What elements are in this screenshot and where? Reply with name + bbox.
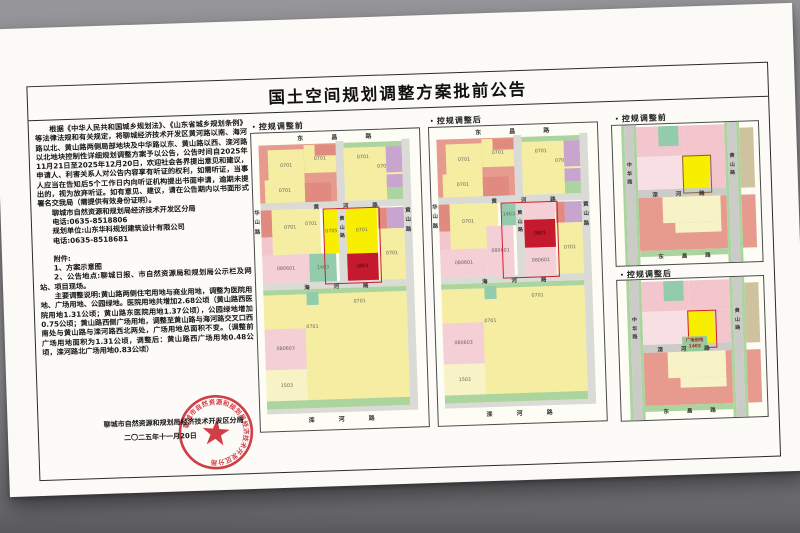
land-block <box>306 292 318 305</box>
land-block-code: 1503 <box>444 363 486 396</box>
land-block <box>709 154 726 188</box>
adjustment-note: 主要调整说明:黄山路两侧住宅用地与商业用地，调整为医院用地、广场用地、公园绿地。… <box>40 285 254 357</box>
land-block <box>682 155 710 192</box>
land-block-code: 0701 <box>456 216 480 227</box>
land-block-code: 080603 <box>265 328 307 370</box>
land-block <box>387 187 403 200</box>
land-block: 080601 <box>525 247 557 275</box>
land-block-code: 080601 <box>262 254 310 284</box>
land-block: 0701 <box>345 296 375 307</box>
land-block-code: 0701 <box>522 290 552 301</box>
map-panel-before-small: 滦 河 路东 昌 路中华路黄山路 <box>611 120 764 267</box>
land-block: 1403 <box>502 203 517 225</box>
road-label: 华山路 <box>254 210 260 238</box>
road-label: 东 昌 路 <box>663 405 724 415</box>
land-block <box>746 349 762 402</box>
notice-frame: 国土空间规划调整方案批前公告 根据《中华人民共和国城乡规划法》、《山东省城乡规划… <box>26 62 781 481</box>
land-block <box>524 202 556 220</box>
notice-body-paragraph: 根据《中华人民共和国城乡规划法》、《山东省城乡规划条例》等法律法规和有关规定，将… <box>35 118 250 209</box>
land-block <box>714 309 731 343</box>
land-block <box>658 126 679 147</box>
land-block-code: 0701 <box>443 173 484 197</box>
land-block-code: 080603 <box>442 322 484 364</box>
road-label: 黄山路 <box>735 307 741 333</box>
land-block <box>484 286 496 299</box>
road-label: 黄山路 <box>729 152 735 178</box>
land-block <box>565 181 581 194</box>
land-block-code: 0701 <box>265 179 306 203</box>
land-block <box>675 221 721 233</box>
land-block <box>386 174 402 188</box>
land-block: 0701 <box>456 216 480 227</box>
land-block: 1503 <box>266 369 308 402</box>
land-block: 0701 <box>268 149 305 182</box>
official-stamp: 聊城市自然资源和规划局经济技术开发区分局 <box>174 391 257 474</box>
land-block: 080601 <box>440 248 488 278</box>
land-block-code: 0705 <box>324 209 339 253</box>
land-block <box>563 140 580 167</box>
land-block <box>662 195 721 223</box>
land-block: 080601 <box>262 254 310 284</box>
stamp-star-icon <box>202 418 231 446</box>
land-block <box>261 210 273 237</box>
land-block-code: 080601 <box>440 248 488 278</box>
land-block: 0701 <box>278 222 302 233</box>
road-label: 东 昌 路 <box>658 250 719 260</box>
map-panel-after-big: 0701070107010701070107010701080603150307… <box>428 121 608 426</box>
land-block-code: 080601 <box>486 225 515 276</box>
road-label: 东 昌 路 <box>475 125 562 137</box>
road-label: 黄山路 <box>583 201 589 229</box>
land-block-code: 0701 <box>446 143 483 176</box>
land-block-code: 1403 <box>309 253 337 282</box>
road-label: 中华路 <box>627 161 633 187</box>
land-block-code: 0701 <box>300 219 322 230</box>
land-block <box>492 138 513 150</box>
land-block <box>439 204 451 231</box>
land-block: 0701 <box>556 222 584 274</box>
land-block: 0701 <box>300 219 322 230</box>
land-block <box>680 376 726 388</box>
map-panel-before-big: 0701070107010701070107010701080603150307… <box>250 127 430 432</box>
land-block <box>314 144 335 156</box>
land-block <box>637 156 683 190</box>
land-block <box>741 194 757 247</box>
road-label: 黄山路 <box>405 207 411 235</box>
land-block-code: 1503 <box>266 369 308 402</box>
land-block: 080603 <box>442 322 484 364</box>
land-block-code: 0701 <box>346 208 378 254</box>
land-block <box>564 201 582 223</box>
map-panel-after-small: 广场用地1403滦 河 路东 昌 路中华路黄山路 <box>616 275 769 422</box>
land-block: 0801 <box>347 253 379 281</box>
land-block <box>483 176 510 196</box>
land-block-code: 0701 <box>378 228 406 280</box>
road-label: 黄山路 <box>339 215 345 241</box>
road-label: 滦 河 路 <box>486 407 563 419</box>
land-block: 0801 <box>524 219 556 248</box>
land-block: 0701 <box>346 208 378 254</box>
land-block: 0705 <box>324 209 339 253</box>
land-block: 080603 <box>265 328 307 370</box>
notice-title: 国土空间规划调整方案批前公告 <box>268 75 528 108</box>
land-block <box>668 350 727 378</box>
land-block <box>386 146 403 173</box>
land-block-code: 0701 <box>556 222 584 274</box>
land-block <box>305 182 332 202</box>
photo-background: 国土空间规划调整方案批前公告 根据《中华人民共和国城乡规划法》、《山东省城乡规划… <box>0 0 800 533</box>
land-block: 0701 <box>522 290 552 301</box>
notice-paper: 国土空间规划调整方案批前公告 根据《中华人民共和国城乡规划法》、《山东省城乡规划… <box>0 3 800 497</box>
land-block-code: 0701 <box>278 222 302 233</box>
land-block: 0701 <box>443 173 484 197</box>
road-label: 华山路 <box>432 204 438 232</box>
land-block <box>387 207 405 229</box>
land-block-code: 080601 <box>525 247 557 275</box>
land-block <box>688 279 730 310</box>
road-label: 中华路 <box>632 316 638 342</box>
land-block: 0701 <box>265 179 306 203</box>
land-block: 1503 <box>444 363 486 396</box>
road-label: 东 昌 路 <box>297 130 384 142</box>
land-block-code: 0701 <box>345 296 375 307</box>
land-block-code: 0801 <box>347 253 379 281</box>
land-block: 1403 <box>309 253 337 282</box>
land-block <box>663 281 684 302</box>
land-block: 080601 <box>486 225 515 276</box>
land-block: 0701 <box>446 143 483 176</box>
road-label: 滦 河 路 <box>308 413 385 425</box>
land-block <box>739 127 755 187</box>
land-block: 0701 <box>378 228 406 280</box>
land-block <box>744 282 760 342</box>
land-block-code: 0701 <box>268 149 305 182</box>
land-block-code: 0801 <box>524 219 556 248</box>
notice-text-column: 根据《中华人民共和国城乡规划法》、《山东省城乡规划条例》等法律法规和有关规定，将… <box>35 118 255 357</box>
land-block <box>683 124 725 155</box>
land-block-code: 1403 <box>502 203 517 225</box>
road-label: 黄山路 <box>517 209 523 235</box>
land-block <box>564 168 580 182</box>
